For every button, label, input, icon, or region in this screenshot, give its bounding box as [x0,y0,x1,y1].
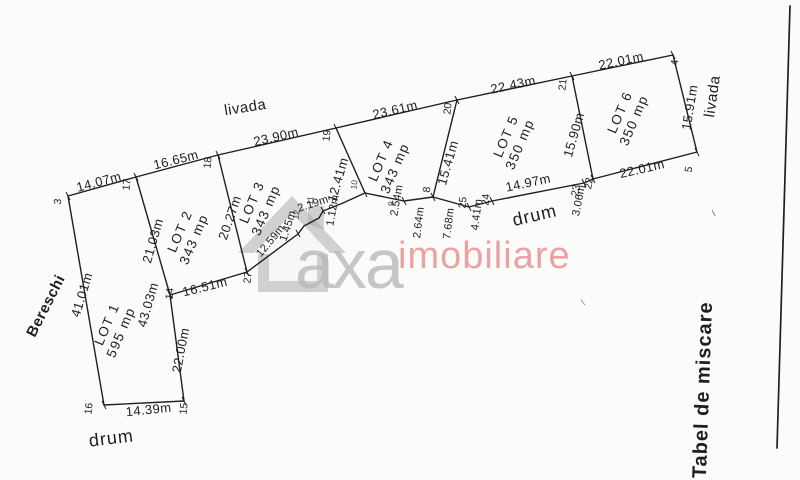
point-label-8: 8 [421,186,434,193]
survey-plan-canvas: axa imobiliare Tabel de miscare livada l… [0,0,800,480]
page-edge: Tabel de miscare [581,6,790,479]
point-label-12: 12 [291,209,302,220]
point-label-3: 3 [52,198,65,205]
cadastral-plan-scan: axa imobiliare Tabel de miscare livada l… [0,0,800,480]
label-drum-right: drum [510,200,558,230]
point-label-16: 16 [82,402,95,415]
stray-scan-mark-2 [581,300,585,305]
point-label-15: 15 [177,402,190,415]
point-label-10: 10 [349,179,360,190]
label-livada-top: livada [223,96,267,119]
label-bereschi: Bereschi [23,272,69,340]
measure-lot2-top: 16.65m [152,147,200,173]
page-fold-line [777,6,790,448]
measure-lot3-top: 23.90m [252,124,300,149]
measure-lot1-right-lower: 22.00m [169,326,192,374]
measure-lot1-bottom: 14.39m [125,400,172,420]
measure-lot5-right: 15.90m [560,111,587,159]
measure-lot1-left: 41.01m [68,271,96,319]
measure-lot5-top: 22.43m [489,73,537,97]
point-label-20: 20 [441,102,454,115]
point-label-27: 27 [241,271,254,284]
point-label-5: 5 [683,165,696,173]
point-label-17: 17 [120,178,133,191]
point-label-22: 22 [582,177,596,191]
measure-lot6-bottom: 22.01m [618,156,666,181]
measure-lot4-right: 15.41m [434,139,461,187]
measure-lot1-top: 14.07m [75,168,123,194]
point-label-25: 25 [456,196,469,209]
point-label-18: 18 [201,156,214,169]
measure-lot6-top: 22.01m [597,49,645,73]
point-label-24: 24 [479,193,492,206]
point-label-19: 19 [320,129,333,142]
measure-lot4-top: 23.61m [371,97,419,122]
stray-scan-mark [712,210,715,216]
side-table-title: Tabel de miscare [689,301,717,478]
measure-lot2-bottom: 16.51m [181,274,229,300]
point-label-4: 4 [669,59,682,66]
point-label-14: 14 [163,287,176,300]
measure-lot1-right-upper: 21.03m [139,217,166,265]
label-livada-right: livada [701,74,724,118]
point-label-11: 11 [305,196,316,206]
point-label-23: 23 [569,184,583,198]
point-label-21: 21 [556,78,569,91]
label-drum-left: drum [88,425,135,450]
watermark-brand-gray: axa [295,225,404,303]
measure-lot1-right-total: 43.03m [134,281,161,329]
watermark-brand-pink: imobiliare [398,235,571,277]
